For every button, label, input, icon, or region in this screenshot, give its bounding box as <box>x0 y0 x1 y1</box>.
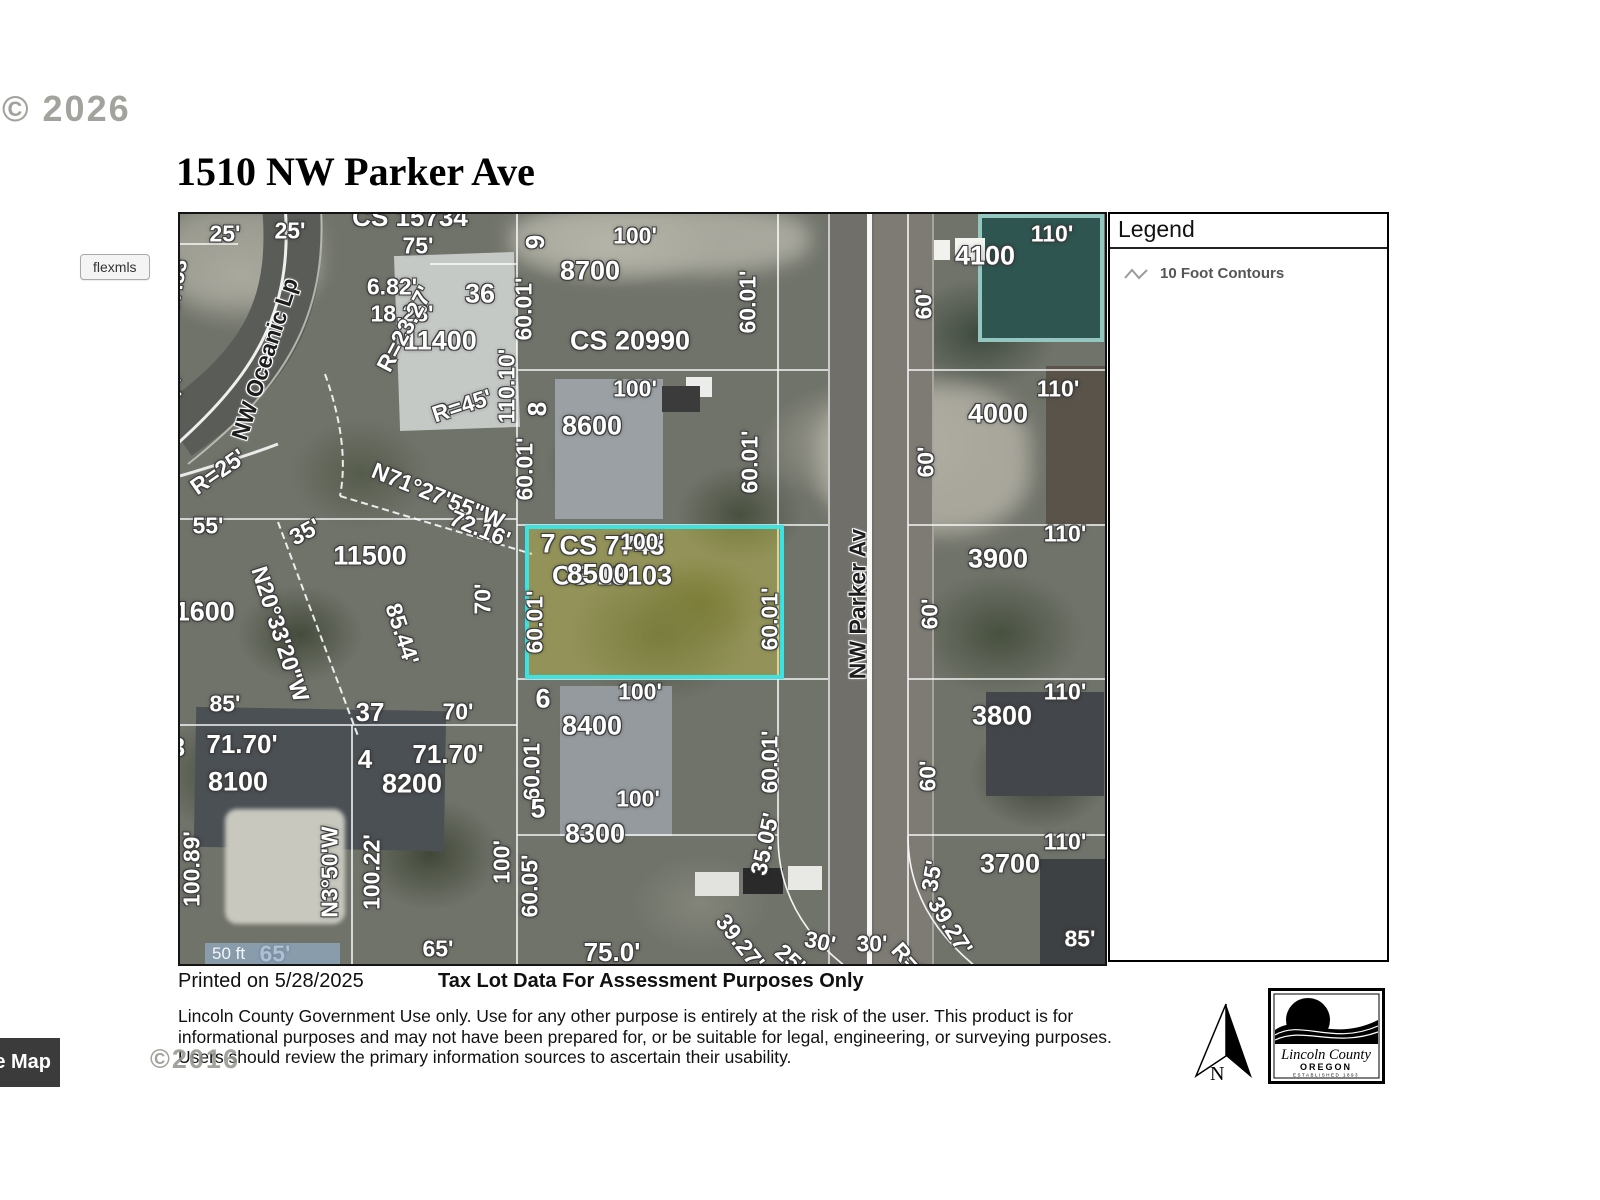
map-label: 100' <box>618 681 662 704</box>
legend-title: Legend <box>1110 214 1387 249</box>
map-label: 3 <box>178 734 185 760</box>
map-label: 8600 <box>562 413 622 440</box>
map-label: 60.01' <box>759 587 782 650</box>
map-label: 8700 <box>560 258 620 285</box>
map-label: 60.01' <box>737 270 760 333</box>
map-toggle-button[interactable]: e Map <box>0 1038 60 1087</box>
map-label: 3700 <box>980 851 1040 878</box>
map-label: 110' <box>1044 523 1087 546</box>
map-label: 30' <box>856 933 887 956</box>
map-label: 60.01' <box>739 430 762 493</box>
map-label: 5 <box>530 796 545 823</box>
map-label: 9 <box>522 235 548 249</box>
map-label: 60' <box>917 760 940 791</box>
map-label: 36 <box>465 281 495 308</box>
logo-county-name: Lincoln County <box>1280 1047 1371 1063</box>
copyright-watermark-top: © 2026 <box>2 88 131 130</box>
map-label: 110' <box>1031 223 1074 246</box>
map-label: 4100 <box>955 243 1015 270</box>
map-label: 110' <box>1037 378 1080 401</box>
map-label: 4000 <box>968 401 1028 428</box>
map-label: R=2 <box>887 938 933 966</box>
map-label: 8500 <box>567 560 629 588</box>
map-label: 65' <box>422 938 453 961</box>
map-label: 39.27' <box>712 910 769 966</box>
map-label: 8200 <box>382 771 442 798</box>
legend-item-contours: 10 Foot Contours <box>1124 265 1373 282</box>
page-title: 1510 NW Parker Ave <box>176 148 535 195</box>
map-label: 100.22' <box>361 834 384 910</box>
map-label: 11600 <box>178 599 235 626</box>
map-label: 100' <box>613 225 657 248</box>
contour-line-icon <box>1124 266 1150 282</box>
map-label: 70' <box>472 583 495 614</box>
map-label: 100.89' <box>181 831 204 907</box>
map-label: 11500 <box>333 543 407 570</box>
map-label: 3800 <box>972 703 1032 730</box>
map-label: 6 <box>535 686 550 713</box>
map-label: 100' <box>620 531 664 554</box>
map-label: 85' <box>1064 928 1095 951</box>
scale-bar: 50 ft <box>205 943 340 965</box>
map-label: 60.01' <box>514 437 537 500</box>
map-label: 25' <box>274 220 305 243</box>
map-label: 39.27' <box>924 893 977 959</box>
map-label: 60.01' <box>513 277 536 340</box>
map-label: 110' <box>1044 831 1087 854</box>
disclaimer-text: Lincoln County Government Use only. Use … <box>178 1006 1118 1068</box>
map-label: 71.70' <box>206 731 277 757</box>
map-label: 7 <box>540 531 555 558</box>
map-label: 8300 <box>565 821 625 848</box>
street-label: NW Oceanic Lp <box>228 275 302 443</box>
street-label: NW Parker Av <box>847 529 870 679</box>
map-label: CS 20990 <box>570 328 690 355</box>
lincoln-county-logo: Lincoln County OREGON ESTABLISHED 1893 <box>1268 988 1385 1084</box>
north-label: N <box>1210 1063 1224 1085</box>
map-label: 35' <box>286 515 324 550</box>
map-labels-layer: 25'25'CS 1573475'9100'60.01'870060.01'11… <box>180 214 1105 964</box>
map-label: 55' <box>192 515 223 538</box>
map-label: 3900 <box>968 546 1028 573</box>
map-label: 85.44' <box>381 600 422 667</box>
map-label: N20°33'20"W <box>247 564 312 705</box>
map-label: 8100 <box>208 769 268 796</box>
map-label: 60' <box>919 598 942 629</box>
map-label: 60.01' <box>524 590 547 653</box>
map-label: 25' <box>209 223 240 246</box>
map-label: 57.53' <box>178 252 192 315</box>
map-label: N3°50'W <box>319 826 342 917</box>
map-label: 27' <box>178 374 192 411</box>
map-label: 110.10' <box>496 349 519 424</box>
map-label: 110' <box>1044 681 1087 704</box>
map-label: 8 <box>524 402 550 416</box>
map-label: 8400 <box>562 713 622 740</box>
map-label: 60.01' <box>521 737 544 800</box>
map-label: 60' <box>915 446 938 477</box>
map-label: 85' <box>209 693 240 716</box>
printed-on-date: Printed on 5/28/2025 <box>178 970 364 993</box>
logo-established: ESTABLISHED 1893 <box>1293 1073 1359 1078</box>
legend-item-label: 10 Foot Contours <box>1160 265 1284 282</box>
map-label: 75.0' <box>584 939 641 965</box>
map-label: 71.70' <box>412 741 483 767</box>
map-label: 70' <box>442 701 473 724</box>
map-label: 60.01' <box>759 730 782 793</box>
map-label: 100' <box>491 840 514 884</box>
map-label: 60' <box>913 288 936 319</box>
map-label: 37 <box>356 699 385 725</box>
map-label: 60.05' <box>519 854 542 917</box>
map-label: 30' <box>802 928 837 957</box>
map-label: 4 <box>358 746 372 772</box>
tax-lot-map[interactable]: 25'25'CS 1573475'9100'60.01'870060.01'11… <box>178 212 1107 966</box>
logo-state: OREGON <box>1300 1062 1352 1072</box>
map-label: 100' <box>616 788 660 811</box>
copyright-watermark-bottom: ©2016 <box>150 1044 240 1075</box>
map-label: R=25' <box>186 445 249 499</box>
map-label: 75' <box>402 235 433 258</box>
map-label: 35.05' <box>747 811 783 877</box>
map-label: CS 15734 <box>352 212 468 230</box>
map-label: 35' <box>918 859 946 894</box>
assessment-notice: Tax Lot Data For Assessment Purposes Onl… <box>438 970 864 993</box>
map-label: R=45' <box>429 386 494 427</box>
flexmls-button[interactable]: flexmls <box>80 254 150 280</box>
legend-panel: Legend 10 Foot Contours <box>1108 212 1389 962</box>
north-arrow: N <box>1182 998 1262 1088</box>
map-label: 100' <box>613 378 657 401</box>
